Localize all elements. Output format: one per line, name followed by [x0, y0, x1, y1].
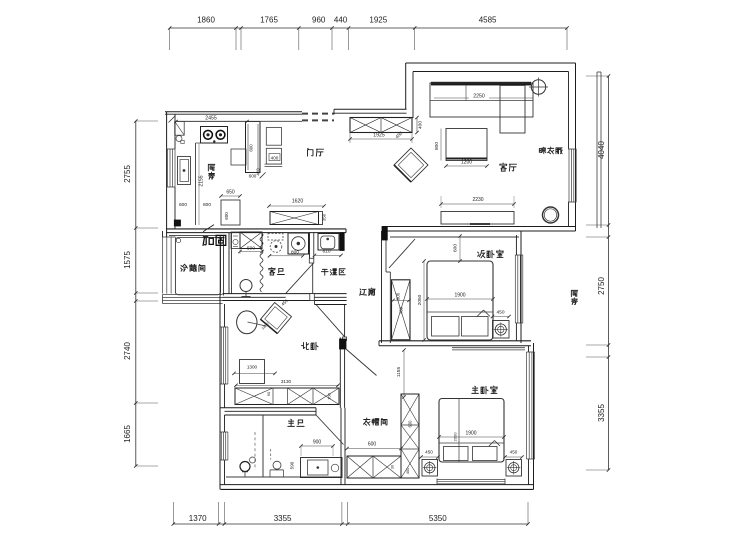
- svg-text:600: 600: [249, 144, 254, 152]
- svg-text:1575: 1575: [123, 251, 132, 269]
- svg-text:2050: 2050: [417, 294, 423, 305]
- svg-text:600: 600: [249, 174, 257, 179]
- svg-text:1200: 1200: [461, 160, 472, 166]
- svg-text:3130: 3130: [281, 379, 292, 384]
- svg-text:1925: 1925: [369, 16, 387, 25]
- svg-text:810: 810: [322, 249, 330, 255]
- svg-text:960: 960: [312, 16, 326, 25]
- svg-text:600: 600: [453, 244, 459, 252]
- svg-text:450: 450: [399, 306, 404, 314]
- svg-text:1900: 1900: [465, 431, 476, 437]
- svg-text:2750: 2750: [597, 277, 606, 295]
- svg-text:600: 600: [408, 420, 413, 428]
- svg-text:90: 90: [266, 391, 271, 396]
- svg-text:1765: 1765: [260, 16, 278, 25]
- svg-text:2250: 2250: [473, 94, 485, 100]
- svg-text:1300: 1300: [247, 365, 258, 370]
- svg-text:2455: 2455: [205, 116, 217, 122]
- svg-text:4585: 4585: [479, 16, 497, 25]
- svg-text:500: 500: [247, 246, 255, 252]
- svg-text:3355: 3355: [597, 404, 606, 422]
- svg-text:800: 800: [434, 142, 440, 150]
- svg-text:600: 600: [368, 442, 377, 448]
- svg-text:900: 900: [313, 440, 322, 446]
- svg-text:450: 450: [510, 450, 518, 455]
- svg-text:2740: 2740: [123, 342, 132, 360]
- svg-text:100: 100: [327, 392, 332, 399]
- svg-text:5350: 5350: [429, 514, 447, 523]
- svg-text:2755: 2755: [123, 165, 132, 183]
- svg-text:400: 400: [271, 155, 279, 160]
- svg-text:600: 600: [396, 292, 401, 300]
- svg-text:440: 440: [334, 16, 348, 25]
- svg-text:400: 400: [418, 121, 424, 129]
- svg-text:1900: 1900: [454, 293, 465, 299]
- svg-text:1155: 1155: [396, 367, 402, 378]
- svg-text:800: 800: [203, 202, 211, 208]
- svg-text:590: 590: [290, 461, 295, 469]
- svg-text:450: 450: [496, 310, 504, 316]
- svg-text:600: 600: [179, 202, 187, 208]
- svg-text:1860: 1860: [197, 16, 215, 25]
- svg-text:400: 400: [405, 467, 410, 474]
- svg-text:30: 30: [391, 465, 395, 469]
- svg-text:3355: 3355: [274, 514, 292, 523]
- svg-text:1370: 1370: [189, 514, 207, 523]
- svg-text:650: 650: [226, 190, 235, 196]
- svg-text:2230: 2230: [472, 197, 483, 203]
- svg-text:1620: 1620: [292, 199, 304, 205]
- svg-text:4040: 4040: [597, 141, 606, 159]
- svg-text:1665: 1665: [123, 425, 132, 443]
- svg-text:450: 450: [425, 450, 433, 455]
- svg-text:800: 800: [291, 250, 299, 256]
- svg-text:350: 350: [322, 213, 327, 221]
- svg-text:600: 600: [224, 212, 229, 220]
- svg-text:1925: 1925: [373, 133, 385, 139]
- svg-text:2155: 2155: [199, 175, 205, 186]
- svg-text:2000: 2000: [453, 432, 458, 442]
